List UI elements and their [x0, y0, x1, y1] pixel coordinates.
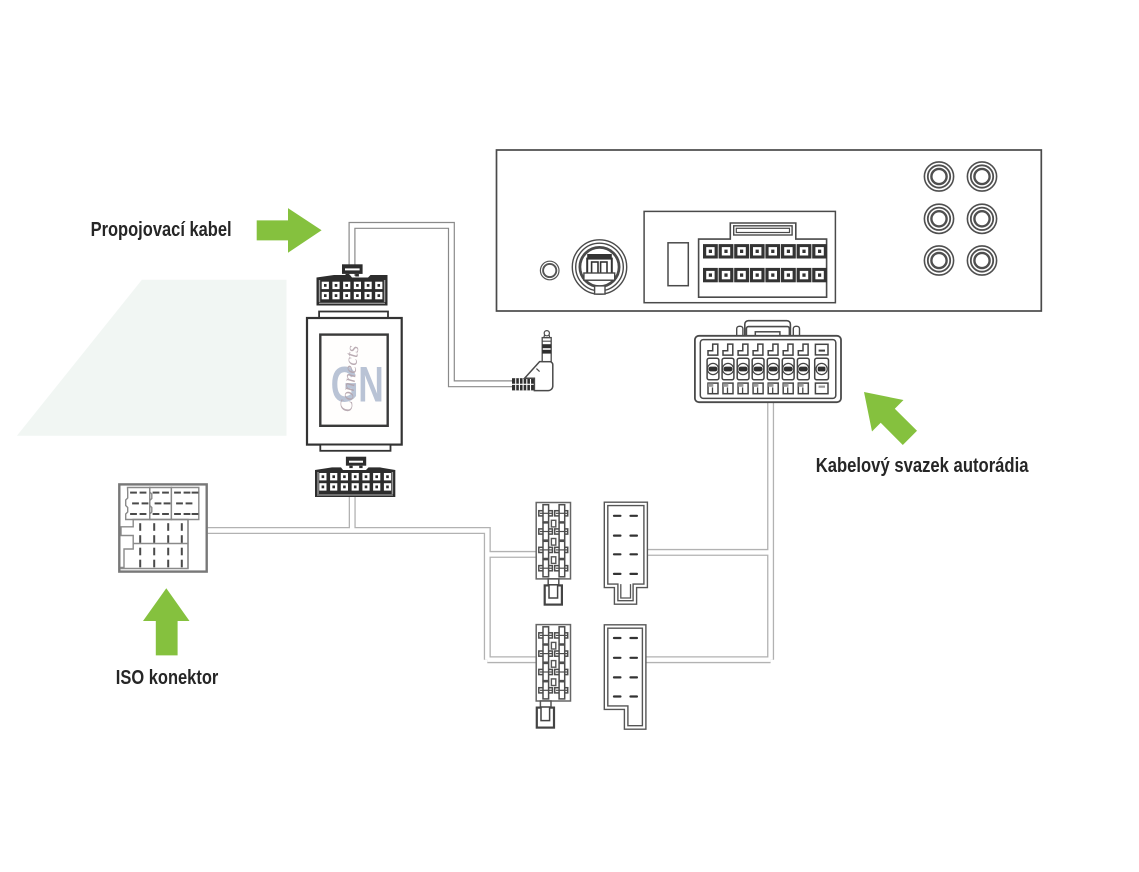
svg-text:Propojovací kabel: Propojovací kabel	[91, 219, 232, 241]
svg-text:ISO konektor: ISO konektor	[116, 667, 219, 689]
svg-text:Kabelový svazek autorádia: Kabelový svazek autorádia	[816, 455, 1030, 477]
